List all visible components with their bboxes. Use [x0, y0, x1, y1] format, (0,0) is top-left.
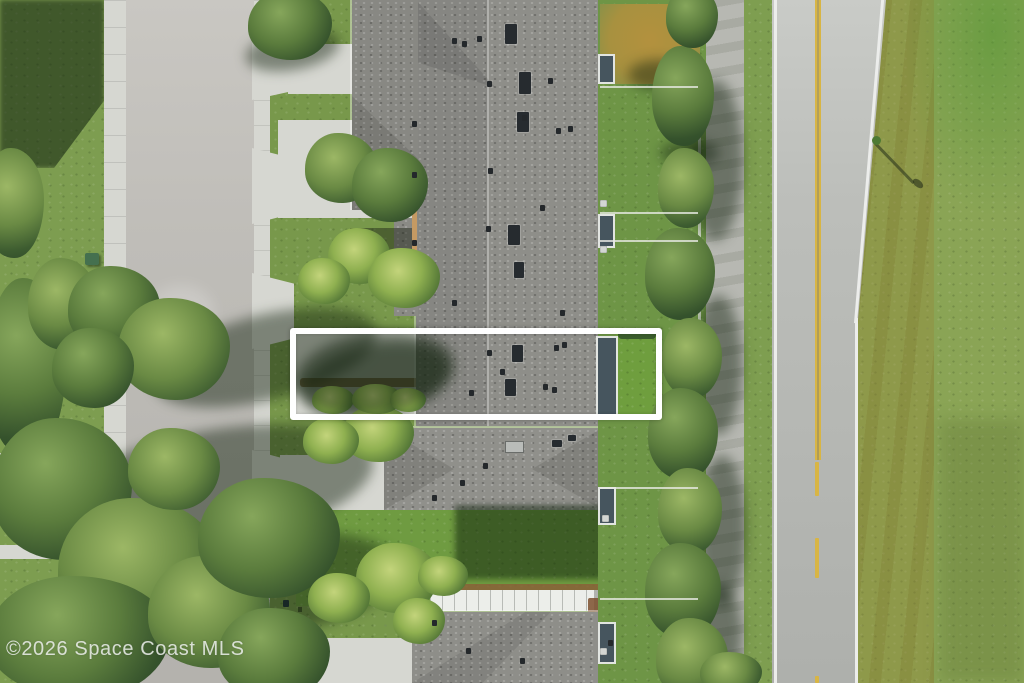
roof-vent	[487, 81, 492, 87]
ac-unit	[600, 648, 607, 655]
roof-vent	[483, 463, 488, 469]
roof-vent	[412, 121, 417, 127]
roof-vent	[462, 41, 467, 47]
backyard-fence	[600, 487, 698, 489]
tree	[658, 468, 722, 554]
roof-vent	[452, 300, 457, 306]
roof-vent	[452, 38, 457, 44]
skylight	[514, 262, 524, 278]
roof-vent	[520, 658, 525, 664]
tree	[662, 318, 722, 398]
roof-vent	[608, 640, 613, 646]
ac-unit	[600, 246, 607, 253]
tree	[418, 556, 468, 596]
roof-vent	[540, 205, 545, 211]
tree	[352, 148, 428, 222]
roof-vent	[560, 310, 565, 316]
roof-vent	[412, 172, 417, 178]
roof-vent	[432, 620, 437, 626]
tree	[0, 148, 44, 258]
roof-vent	[488, 168, 493, 174]
roof-vent	[432, 495, 437, 501]
road-center-dash	[815, 676, 819, 683]
road-center-dash	[815, 538, 819, 578]
aerial-photo: ©2026 Space Coast MLS	[0, 0, 1024, 683]
skylight	[508, 225, 520, 245]
backyard-fence	[600, 598, 698, 600]
roof-vent	[548, 78, 553, 84]
backyard-fence	[600, 212, 698, 214]
roof-vent	[486, 226, 491, 232]
tree	[652, 46, 714, 146]
tree	[308, 573, 370, 623]
roof-vent	[412, 240, 417, 246]
tree	[303, 418, 359, 464]
skylight	[552, 440, 562, 447]
road-center-dash	[815, 462, 819, 496]
roof-vent	[568, 126, 573, 132]
listing-highlight-box	[290, 328, 662, 420]
tree	[393, 598, 445, 644]
ac-unit	[602, 515, 609, 522]
backyard-fence	[600, 86, 698, 88]
tree	[128, 428, 220, 510]
tree	[666, 0, 718, 48]
tree	[118, 298, 230, 400]
ac-unit	[600, 200, 607, 207]
skylight	[519, 72, 531, 94]
roof-vent	[556, 128, 561, 134]
tree	[700, 652, 762, 683]
skylight	[505, 24, 517, 44]
backyard-fence	[600, 240, 698, 242]
skylight	[568, 435, 576, 441]
roof-vent	[466, 648, 471, 654]
tree	[298, 258, 350, 304]
tree	[52, 328, 134, 408]
tree	[658, 148, 714, 228]
tree	[368, 248, 440, 308]
roof-vent	[522, 115, 527, 121]
watermark: ©2026 Space Coast MLS	[6, 638, 245, 661]
roof-vent	[460, 480, 465, 486]
roof-vent	[477, 36, 482, 42]
